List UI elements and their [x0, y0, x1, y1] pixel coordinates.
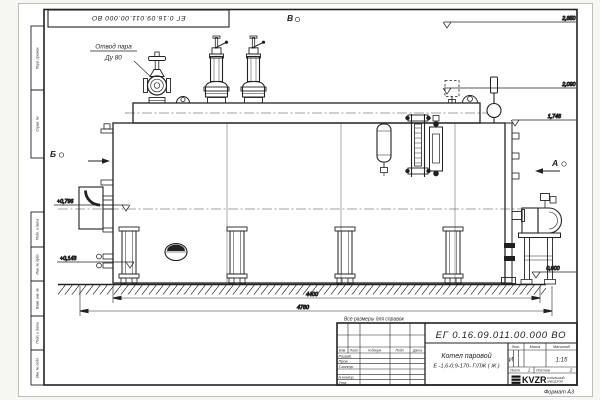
logo-subtext-2: ЗАВОД РЭП	[547, 379, 563, 383]
ground-line	[58, 285, 546, 295]
margin-label: Инв. № дубл.	[36, 254, 40, 275]
drawing-sheet: { "sheet": { "format_label": "Формат А3"…	[0, 0, 600, 400]
elevation-value: +0,143	[60, 256, 76, 262]
elevation-value: +0,796	[57, 199, 73, 205]
margin-label: Подп. и дата	[36, 322, 40, 343]
scale-header: Масштаб	[553, 345, 571, 349]
format-label: Формат А3	[544, 390, 575, 396]
margin-label: Подп. и дата	[36, 219, 40, 240]
signature-row-label: Разраб.	[339, 354, 353, 358]
callout-line1: Отвод пара	[95, 43, 132, 51]
dimension-value: 4400	[306, 292, 318, 298]
col-header-podp: Подп.	[395, 349, 404, 353]
col-header-izm: Изм.	[339, 349, 346, 353]
view-marker-v: В	[287, 13, 293, 23]
mass-header: Масса	[530, 345, 541, 349]
view-marker-b: Б	[50, 149, 56, 159]
logo-text: KVZR	[522, 375, 547, 385]
col-header-data: Дата	[412, 349, 422, 353]
sheets-label: Листов	[535, 369, 550, 373]
col-header-ndoc: N докум.	[368, 349, 382, 353]
margin-label: Справ. №	[36, 116, 40, 132]
product-model: Е -1,6-0,9-170- Г/ЛЖ ( Ж )	[433, 364, 499, 370]
lit-value: И	[509, 357, 514, 364]
signature-row-label: Н.контр.	[339, 376, 355, 380]
margin-label: Взам. инв. №	[36, 288, 40, 309]
inverted-doc-number: ЕГ 0.16.09.011.00.000 ВО	[91, 14, 185, 21]
boiler-general-view-drawing: Перв. примен. Справ. № Подп. и дата Инв.…	[0, 0, 600, 400]
scale-value: 1:15	[556, 358, 568, 364]
margin-label: Инв. № подл.	[36, 357, 40, 378]
signature-row-label: Утв.	[339, 381, 348, 385]
elevation-value: 2,850	[561, 16, 575, 22]
title-block-doc-number: ЕГ 0.16.09.011.00.000 ВО	[436, 330, 567, 341]
dimension-value: 4780	[297, 305, 309, 311]
reference-note: Все размеры для справок	[344, 317, 405, 323]
elevation-value: 1,746	[548, 114, 561, 120]
sheets-value: 2	[569, 368, 573, 373]
sheet-label: Лист	[509, 369, 520, 373]
signature-row-label: Пров.	[339, 360, 349, 364]
elevation-value: 2,090	[561, 82, 575, 88]
lit-header: Лит.	[511, 345, 520, 349]
callout-line2: Ду 80	[104, 55, 122, 62]
signature-row-label: Т.контр.	[339, 365, 354, 369]
margin-label: Перв. примен.	[36, 47, 40, 70]
view-marker-a: А	[551, 158, 558, 168]
product-name: Котел паровой	[441, 352, 491, 360]
elevation-value: 0,000	[546, 266, 559, 272]
col-header-list: Лист	[349, 349, 359, 353]
